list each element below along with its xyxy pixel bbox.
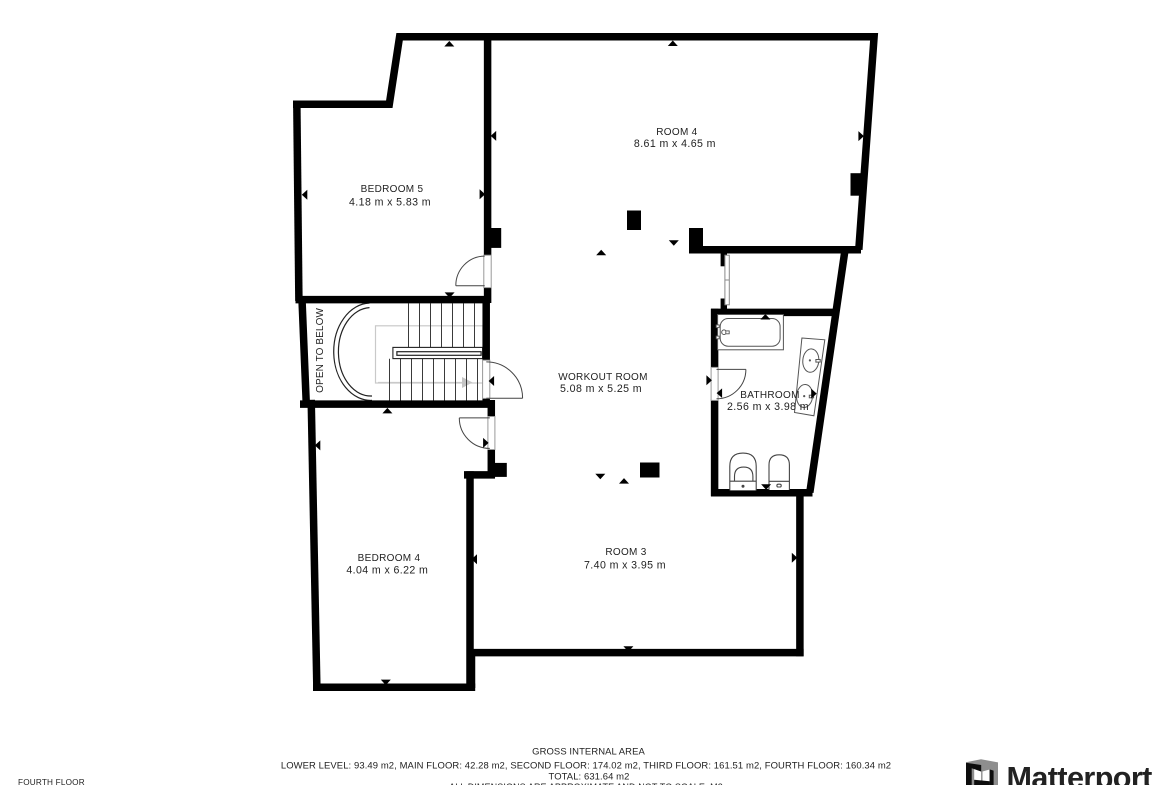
svg-text:5.08 m x 5.25 m: 5.08 m x 5.25 m bbox=[560, 383, 642, 395]
svg-text:TOTAL: 631.64 m2: TOTAL: 631.64 m2 bbox=[549, 772, 630, 783]
svg-text:2.56 m x 3.98 m: 2.56 m x 3.98 m bbox=[727, 401, 809, 413]
svg-text:Matterport: Matterport bbox=[1007, 761, 1153, 785]
svg-text:BATHROOM: BATHROOM bbox=[740, 390, 799, 401]
svg-text:BEDROOM 5: BEDROOM 5 bbox=[361, 184, 424, 195]
svg-text:7.40 m x 3.95 m: 7.40 m x 3.95 m bbox=[584, 560, 666, 572]
svg-text:OPEN TO BELOW: OPEN TO BELOW bbox=[315, 308, 326, 393]
svg-text:WORKOUT ROOM: WORKOUT ROOM bbox=[558, 372, 648, 383]
svg-text:ROOM 3: ROOM 3 bbox=[605, 547, 646, 558]
svg-text:8.61 m x 4.65 m: 8.61 m x 4.65 m bbox=[634, 138, 716, 150]
svg-text:4.04 m x 6.22 m: 4.04 m x 6.22 m bbox=[346, 565, 428, 577]
svg-text:FOURTH FLOOR: FOURTH FLOOR bbox=[18, 778, 85, 785]
svg-text:LOWER LEVEL: 93.49 m2, MAIN FL: LOWER LEVEL: 93.49 m2, MAIN FLOOR: 42.28… bbox=[281, 761, 891, 772]
svg-text:ROOM 4: ROOM 4 bbox=[656, 127, 697, 138]
svg-text:GROSS INTERNAL AREA: GROSS INTERNAL AREA bbox=[532, 746, 645, 757]
svg-text:BEDROOM 4: BEDROOM 4 bbox=[358, 553, 421, 564]
svg-text:4.18 m x 5.83 m: 4.18 m x 5.83 m bbox=[349, 197, 431, 209]
